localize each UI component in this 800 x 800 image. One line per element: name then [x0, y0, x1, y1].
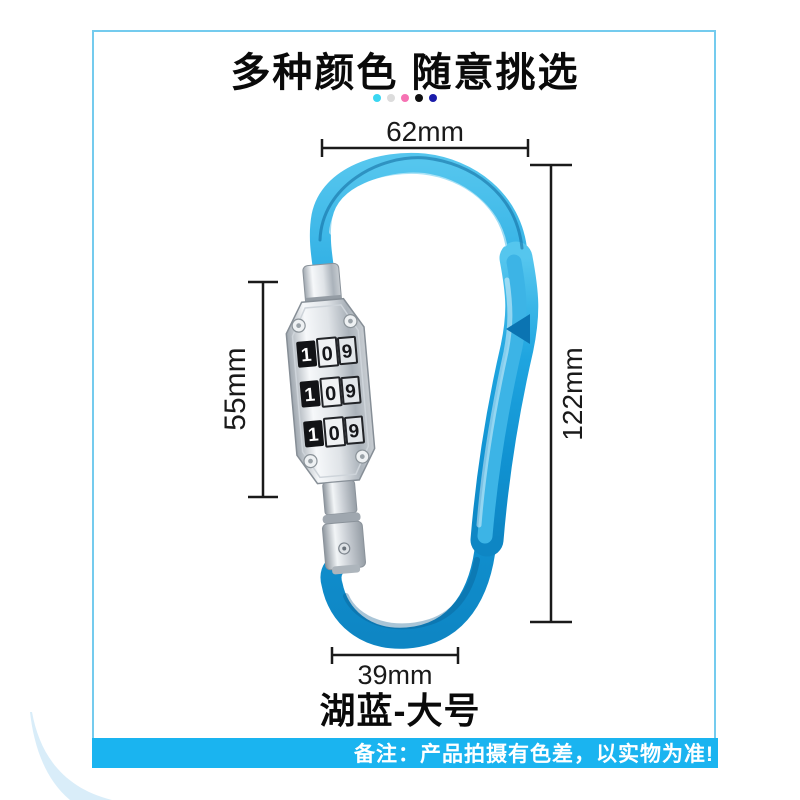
dial2-digit-center: 0	[324, 383, 337, 406]
dial2-digit-right: 9	[344, 381, 356, 403]
dimension-label-top-width: 62mm	[350, 116, 500, 148]
lock-bottom-barrel	[318, 480, 366, 575]
combination-lock: 1 0 9 1 0 9 1 0 9	[281, 261, 386, 577]
dial3-digit-center: 0	[328, 423, 341, 446]
dimension-label-total-height: 122mm	[557, 329, 589, 459]
dial3-digit-right: 9	[348, 421, 360, 443]
dimension-label-lock-height: 55mm	[219, 329, 253, 449]
footer-note-bar: 备注：产品拍摄有色差，以实物为准!	[92, 738, 718, 768]
footer-note-text: 备注：产品拍摄有色差，以实物为准!	[354, 738, 714, 768]
dial1-digit-center: 0	[321, 343, 334, 366]
product-variant-name: 湖蓝-大号	[92, 682, 708, 734]
dial1-digit-right: 9	[341, 341, 353, 363]
